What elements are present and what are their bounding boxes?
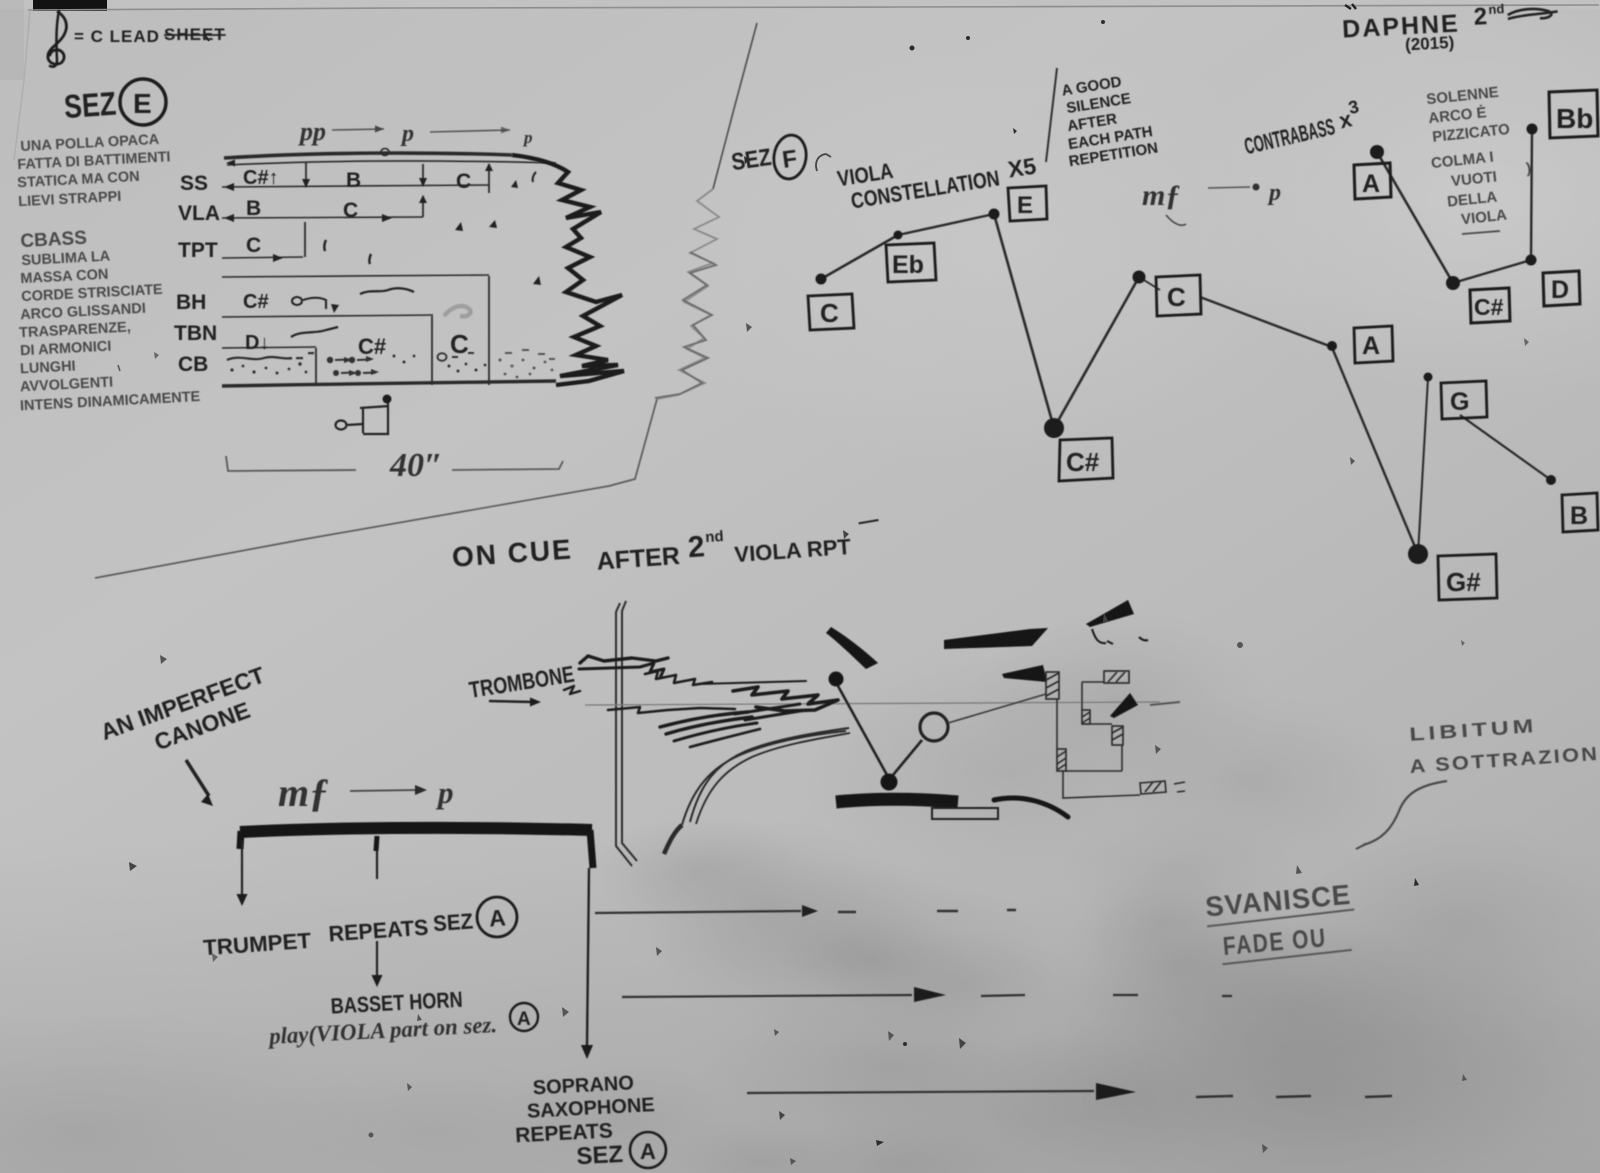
svg-text:CB: CB (178, 353, 208, 376)
svg-text:G: G (1450, 388, 1469, 416)
svg-text:A: A (640, 1139, 656, 1164)
svg-text:D: D (1551, 276, 1569, 304)
svg-text:A: A (517, 1009, 531, 1030)
svg-text:SEZ: SEZ (63, 85, 117, 126)
svg-text:CBASS: CBASS (20, 228, 88, 252)
svg-text:C: C (246, 234, 261, 257)
svg-text:C#↑: C#↑ (243, 167, 279, 189)
svg-text:2: 2 (687, 530, 706, 564)
svg-text:AFTER: AFTER (596, 542, 681, 576)
svg-text:E: E (1017, 192, 1033, 219)
svg-text:A: A (488, 904, 506, 931)
svg-text:C: C (456, 170, 471, 193)
svg-text:SEZ: SEZ (576, 1141, 624, 1170)
svg-text:C#: C# (1474, 294, 1504, 320)
svg-text:X5: X5 (1006, 152, 1038, 182)
svg-text:p: p (435, 775, 454, 810)
svg-text:LUNGHI: LUNGHI (20, 358, 76, 377)
svg-text:C: C (450, 329, 469, 359)
svg-text:SEZ: SEZ (730, 144, 773, 176)
svg-text:SEZ: SEZ (432, 908, 474, 936)
svg-text:2: 2 (1473, 3, 1488, 31)
svg-text:C: C (343, 199, 358, 222)
svg-text:E: E (133, 88, 152, 119)
svg-text:pp: pp (298, 117, 326, 146)
svg-text:A: A (1362, 170, 1380, 198)
svg-text:C#: C# (1066, 447, 1100, 477)
svg-text:VLA: VLA (178, 202, 220, 225)
svg-text:D↓: D↓ (245, 332, 269, 354)
svg-text:(2015): (2015) (1405, 33, 1455, 55)
svg-text:p: p (1267, 180, 1281, 206)
svg-text:SHEET: SHEET (164, 25, 226, 44)
svg-text:nd: nd (705, 528, 724, 546)
svg-text:BH: BH (176, 291, 206, 314)
svg-text:B: B (346, 169, 361, 192)
svg-text:G#: G# (1446, 567, 1481, 597)
svg-text:A: A (1362, 332, 1380, 360)
svg-text:Eb: Eb (892, 251, 924, 279)
svg-text:B: B (1570, 502, 1588, 530)
svg-text:40″: 40″ (389, 447, 443, 484)
svg-text:mƒ: mƒ (1142, 179, 1180, 212)
svg-text:Bb: Bb (1556, 103, 1593, 134)
svg-text:TPT: TPT (178, 239, 218, 262)
svg-text:TBN: TBN (174, 322, 217, 345)
svg-text:C: C (1167, 282, 1186, 312)
svg-text:SS: SS (180, 172, 208, 195)
svg-text:nd: nd (1488, 1, 1505, 17)
svg-text:p: p (400, 121, 414, 147)
svg-text:C#: C# (358, 334, 386, 359)
svg-text:mƒ: mƒ (278, 770, 329, 815)
svg-text:C: C (820, 298, 839, 328)
svg-text:p: p (522, 128, 533, 147)
svg-text:C#: C# (243, 291, 269, 313)
svg-text:B: B (246, 197, 261, 220)
svg-text:= C LEAD: = C LEAD (74, 27, 160, 46)
